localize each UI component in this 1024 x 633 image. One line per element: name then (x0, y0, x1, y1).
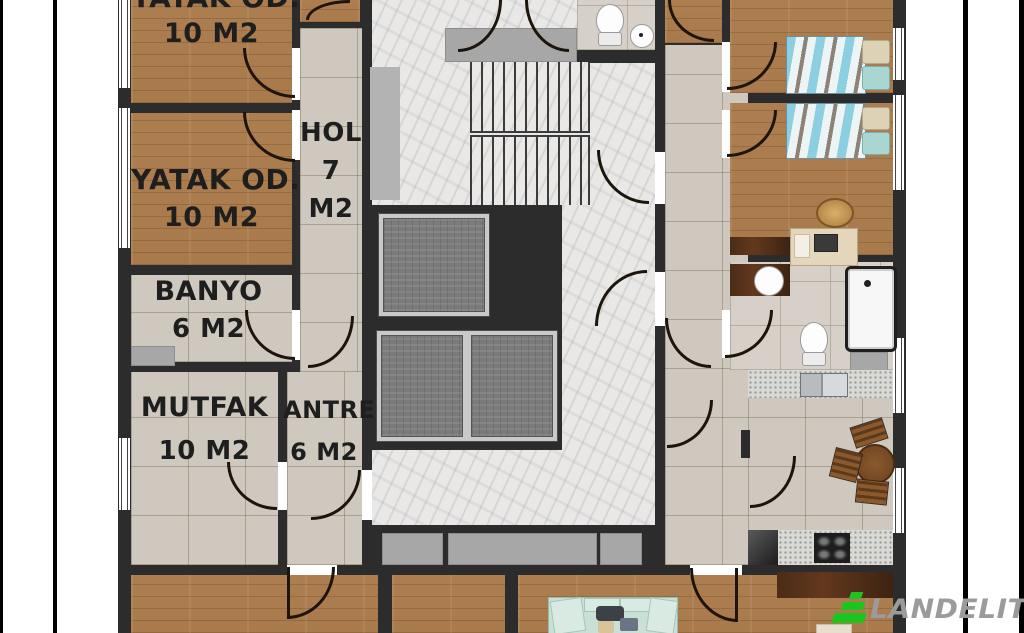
bed-pillow (862, 132, 890, 155)
cooktop-icon (814, 533, 850, 563)
duct-shaft (370, 67, 400, 200)
balcony-slab-2 (448, 533, 597, 565)
toilet-icon (800, 322, 828, 356)
door-threshold (655, 272, 665, 326)
room-area-antre: 6 M2 (283, 440, 365, 464)
elevator-car (471, 335, 553, 437)
room-label-bedroom: YATAK OD. (131, 166, 292, 194)
room-label-hol: HOL (300, 120, 362, 146)
floor-pillow (620, 618, 638, 631)
toilet-tank (802, 352, 826, 366)
laptop-icon (814, 234, 838, 252)
balcony-slab-1 (382, 533, 443, 565)
bed (786, 103, 866, 159)
kitchen-partition-wall (741, 430, 750, 458)
watermark: LANDELITY (828, 588, 1024, 633)
elevator-car (381, 335, 463, 437)
bed (786, 36, 866, 94)
floor-plan-canvas: YATAK OD. 10 M2 YATAK OD. 10 M2 HOL 7 M2… (0, 0, 1024, 633)
living-mid-floor (392, 575, 505, 633)
room-label-mutfak: MUTFAK (131, 394, 278, 421)
window (119, 0, 130, 88)
shower-tray (845, 266, 897, 352)
kitchen-fridge (748, 530, 778, 565)
sofa-cushion (550, 597, 586, 633)
elevator-car (383, 218, 485, 312)
papers-icon (794, 234, 810, 258)
room-label-bedroom-top: YATAK OD. (131, 0, 292, 12)
frame-line-left-inner (53, 0, 57, 633)
room-area-value-hol: 7 (300, 158, 362, 184)
shower-drain (864, 280, 871, 287)
dining-chair (855, 478, 889, 505)
watermark-logo-icon (841, 602, 866, 610)
room-area-mutfak: 10 M2 (131, 438, 278, 464)
sink-drain (639, 33, 643, 37)
window (893, 28, 904, 80)
window (893, 95, 904, 190)
watermark-brand-text: LANDELITY (870, 594, 1024, 625)
window (119, 108, 130, 248)
room-area-unit-hol: M2 (300, 196, 362, 222)
banyo-counter (131, 346, 175, 366)
bed-pillow (862, 40, 890, 64)
room-label-antre: ANTRE (283, 398, 365, 422)
stair-mid-landing-line (470, 131, 590, 137)
sofa-cushion (646, 597, 678, 633)
toilet-tank (598, 32, 622, 46)
balcony-slab-3 (600, 533, 642, 565)
elevator-pair (376, 330, 558, 442)
bed-pillow (862, 107, 890, 130)
frame-line-right-outer (1019, 0, 1024, 633)
frame-line-left-outer (0, 0, 3, 633)
room-label-banyo: BANYO (131, 278, 286, 305)
sofa-cushion (620, 598, 652, 612)
window (119, 438, 130, 510)
elevator-single (378, 213, 490, 317)
room-area-bedroom: 10 M2 (131, 204, 292, 231)
frame-line-right-inner (963, 0, 968, 633)
floor-pillow (598, 621, 614, 633)
wardrobe (730, 237, 790, 255)
watermark-logo-icon (849, 592, 864, 599)
door-threshold (655, 152, 665, 204)
room-area-bedroom-top: 10 M2 (131, 20, 292, 47)
kitchen-sink-icon (800, 373, 848, 397)
door-threshold (278, 462, 287, 510)
bed-pillow (862, 66, 890, 90)
bathroom-slab (850, 352, 888, 372)
door-threshold (362, 470, 372, 520)
window (893, 468, 904, 533)
desk-chair (816, 198, 854, 228)
watermark-logo-icon (831, 613, 867, 623)
room-area-banyo: 6 M2 (131, 316, 286, 342)
bathroom-sink-icon (754, 266, 784, 296)
living-left-floor (131, 575, 378, 633)
